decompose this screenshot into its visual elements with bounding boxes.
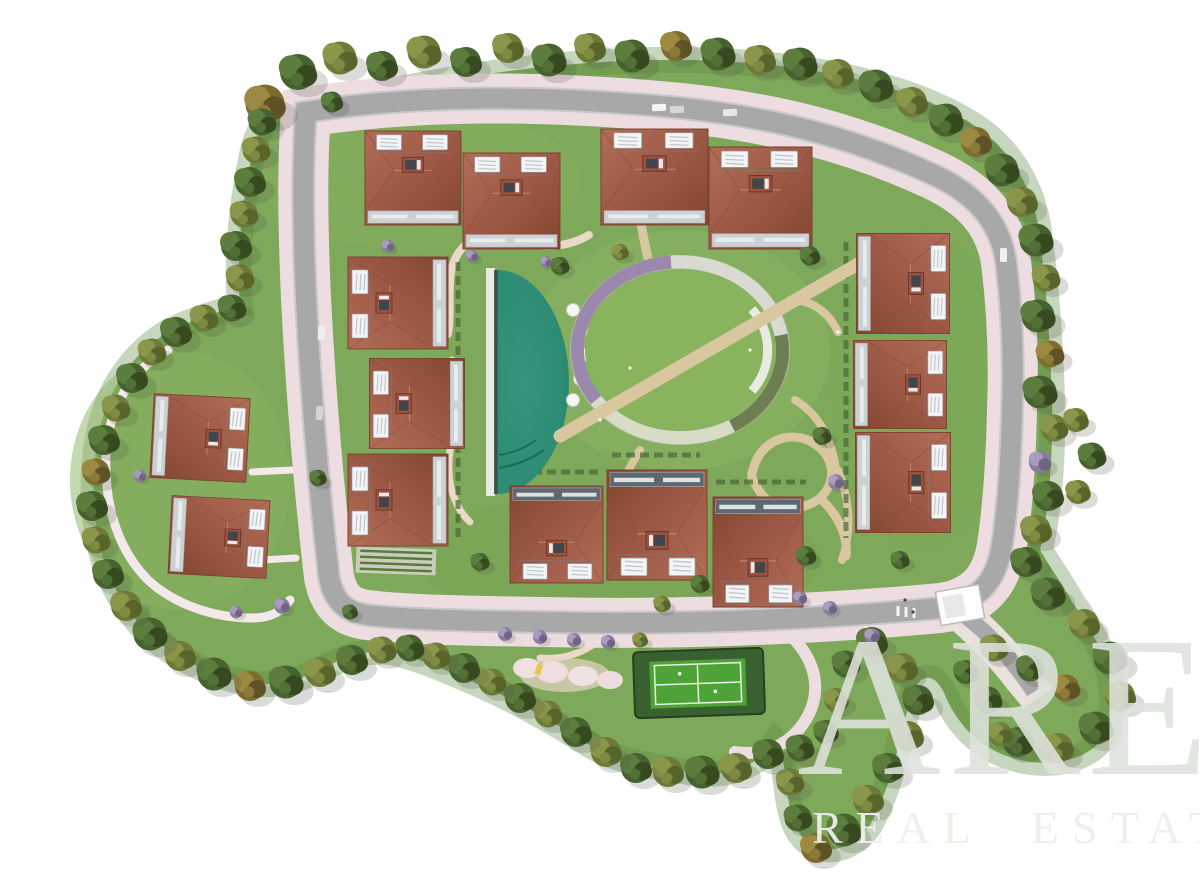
tree — [406, 36, 451, 76]
pergola-trellis — [356, 547, 437, 576]
building — [168, 495, 270, 578]
building — [857, 234, 950, 334]
tennis-court — [633, 648, 765, 718]
building — [348, 257, 448, 349]
building — [601, 129, 708, 225]
watermark-tagline: REAL ESTATE — [812, 802, 1200, 853]
pool-deck — [486, 268, 495, 496]
tree — [1078, 443, 1115, 475]
site-plan-render: Aerial site plan render of a gated resid… — [0, 0, 1200, 878]
building — [348, 454, 448, 546]
watermark: ARE REAL ESTATE — [797, 597, 1200, 853]
tree — [322, 42, 367, 82]
building — [709, 147, 812, 249]
building — [607, 470, 707, 580]
building — [463, 153, 560, 249]
building — [510, 486, 603, 583]
building — [365, 131, 461, 225]
building — [856, 433, 951, 533]
watermark-brand: ARE — [797, 597, 1200, 818]
building — [713, 497, 803, 607]
building — [370, 359, 465, 449]
aerial-render: Aerial site plan render of a gated resid… — [0, 0, 1200, 878]
building — [150, 394, 250, 483]
building — [854, 341, 947, 429]
